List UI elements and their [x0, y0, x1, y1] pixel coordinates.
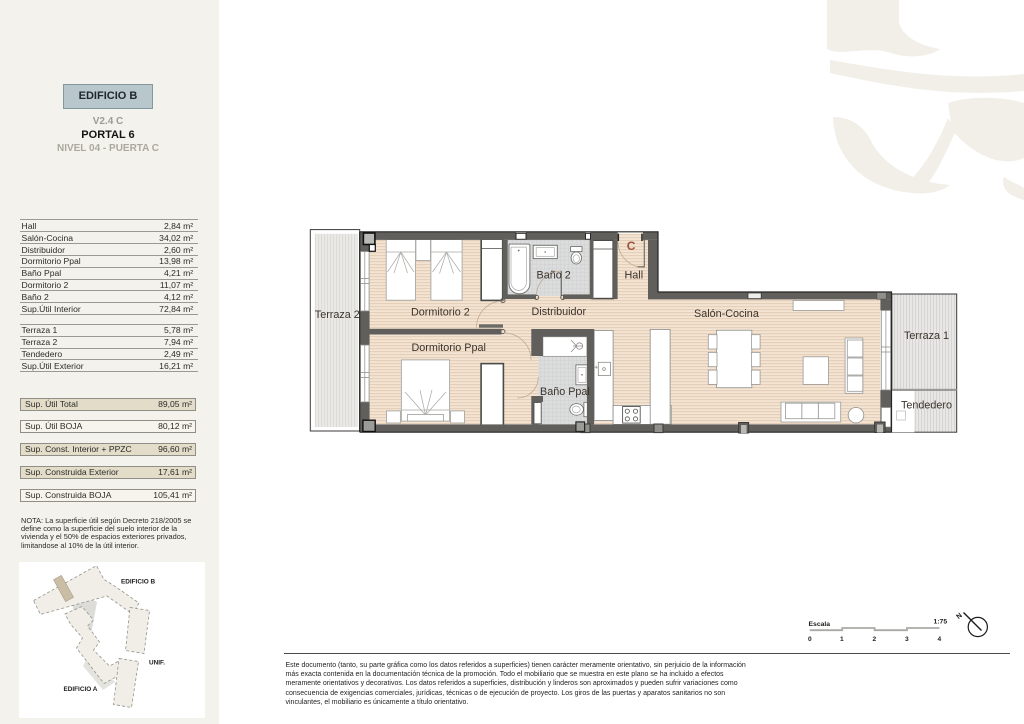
- svg-text:4: 4: [938, 636, 942, 643]
- svg-text:Dormitorio 2: Dormitorio 2: [411, 306, 470, 318]
- svg-text:UNIF.: UNIF.: [149, 660, 165, 667]
- svg-text:C: C: [627, 239, 636, 253]
- svg-text:Hall: Hall: [625, 269, 644, 281]
- svg-text:Terraza 1: Terraza 1: [904, 330, 949, 342]
- svg-text:2: 2: [873, 636, 877, 643]
- svg-text:Tendedero: Tendedero: [901, 400, 952, 412]
- svg-text:EDIFICIO B: EDIFICIO B: [121, 579, 155, 586]
- svg-text:Salón-Cocina: Salón-Cocina: [694, 308, 759, 320]
- svg-text:N: N: [955, 612, 963, 621]
- svg-text:EDIFICIO A: EDIFICIO A: [64, 686, 98, 693]
- svg-text:Dormitorio Ppal: Dormitorio Ppal: [412, 342, 486, 354]
- svg-text:1: 1: [840, 636, 844, 643]
- svg-text:1:75: 1:75: [934, 619, 948, 626]
- svg-text:0: 0: [808, 636, 812, 643]
- svg-text:Escala: Escala: [809, 621, 831, 628]
- svg-text:Distribuidor: Distribuidor: [532, 306, 587, 318]
- svg-text:3: 3: [905, 636, 909, 643]
- svg-text:Terraza 2: Terraza 2: [315, 309, 360, 321]
- svg-text:Baño 2: Baño 2: [537, 269, 571, 281]
- svg-text:Baño Ppal: Baño Ppal: [540, 386, 590, 398]
